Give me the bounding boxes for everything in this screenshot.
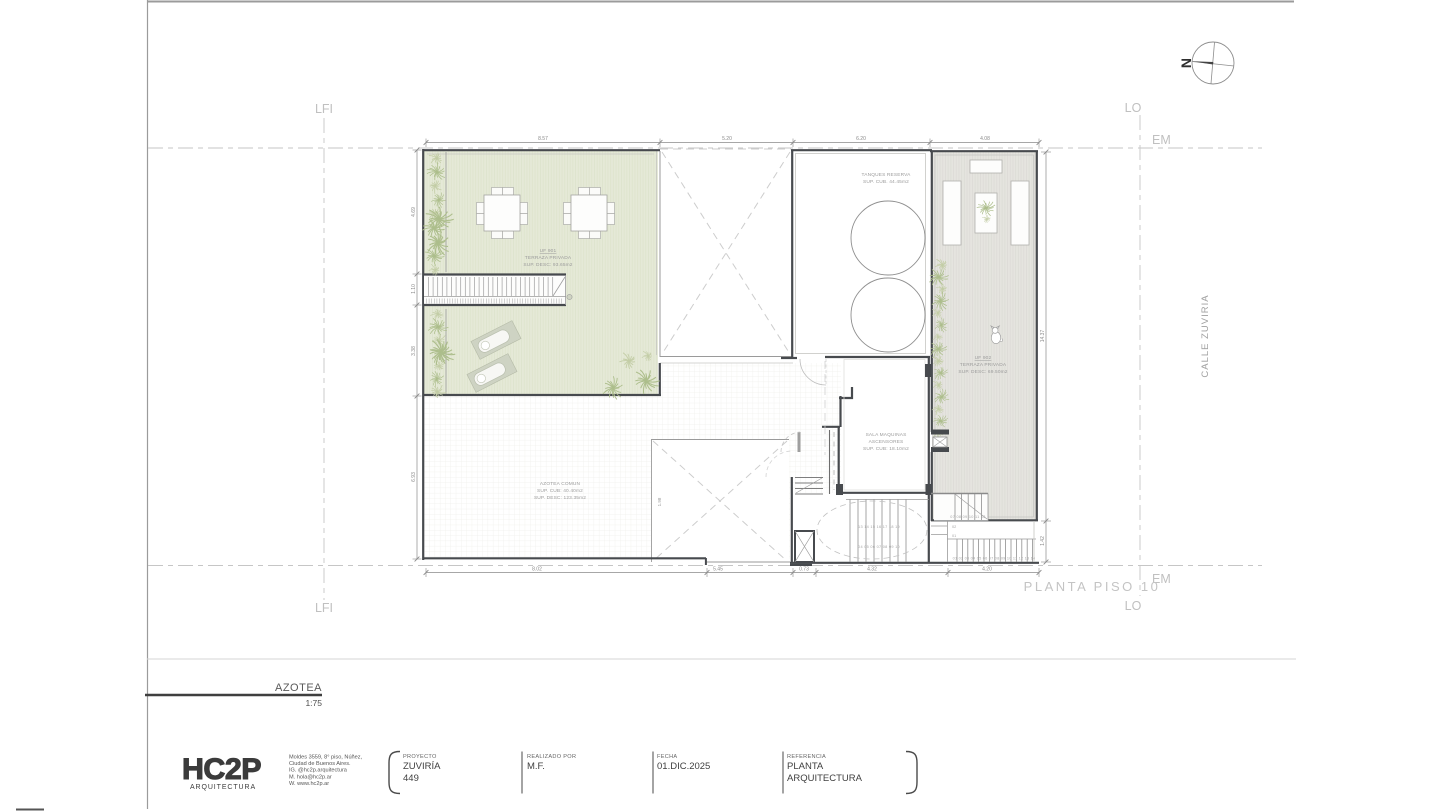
svg-text:PLANTA: PLANTA [787, 761, 824, 772]
svg-text:Ciudad de Buenos Aires.: Ciudad de Buenos Aires. [289, 761, 351, 767]
svg-text:FECHA: FECHA [657, 754, 677, 760]
svg-text:W. www.hc2p.ar: W. www.hc2p.ar [289, 781, 329, 787]
svg-text:HC2P: HC2P [182, 753, 261, 786]
svg-text:SUP. CUB. 44.45m2: SUP. CUB. 44.45m2 [863, 179, 909, 185]
svg-text:6.20: 6.20 [856, 136, 866, 142]
svg-text:ASCENSORES: ASCENSORES [869, 439, 904, 445]
svg-text:M. hola@hc2p.ar: M. hola@hc2p.ar [289, 774, 332, 780]
svg-text:14.37: 14.37 [1040, 330, 1046, 343]
svg-text:SALA MAQUINAS: SALA MAQUINAS [866, 432, 907, 438]
svg-text:PLANTA PISO 10: PLANTA PISO 10 [1024, 579, 1161, 594]
svg-text:1.42: 1.42 [1040, 536, 1046, 546]
svg-text:TERRAZA PRIVADA: TERRAZA PRIVADA [525, 255, 572, 261]
svg-text:Moldes 3559, 8° piso, Núñez,: Moldes 3559, 8° piso, Núñez, [289, 755, 363, 761]
svg-text:ARQUITECTURA: ARQUITECTURA [787, 773, 863, 784]
svg-text:04 05 06 07 08 09 10: 04 05 06 07 08 09 10 [858, 545, 900, 549]
svg-text:02: 02 [952, 525, 956, 529]
svg-text:SUP. DESC: 123.35m2: SUP. DESC: 123.35m2 [534, 495, 586, 501]
svg-text:CALLE ZUVIRIA: CALLE ZUVIRIA [1200, 294, 1211, 377]
svg-text:3.38: 3.38 [411, 346, 417, 356]
svg-text:TANQUES RESERVA: TANQUES RESERVA [862, 172, 912, 178]
svg-text:LFI: LFI [315, 102, 333, 116]
svg-text:01.DIC.2025: 01.DIC.2025 [657, 761, 710, 772]
svg-text:5.20: 5.20 [722, 136, 732, 142]
svg-text:5.45: 5.45 [713, 567, 723, 573]
svg-text:LFI: LFI [315, 601, 333, 615]
svg-text:REALIZADO POR: REALIZADO POR [527, 754, 576, 760]
svg-text:0.73: 0.73 [799, 567, 809, 573]
svg-text:SUP. CUB: 18.10m2: SUP. CUB: 18.10m2 [863, 446, 909, 452]
svg-text:SUP. DESC: 69.50m2: SUP. DESC: 69.50m2 [958, 369, 1007, 375]
svg-text:LO: LO [1125, 101, 1142, 115]
svg-text:SUP. CUB: 40.40m2: SUP. CUB: 40.40m2 [537, 488, 583, 494]
svg-text:UF 902: UF 902 [975, 355, 992, 361]
svg-text:N: N [1178, 58, 1194, 68]
svg-text:ZUVIRÍA: ZUVIRÍA [403, 761, 441, 772]
svg-text:6.93: 6.93 [411, 472, 417, 482]
svg-text:07 08 09 10 11 12: 07 08 09 10 11 12 [950, 515, 985, 519]
svg-text:1:75: 1:75 [305, 698, 322, 708]
svg-text:01 02 03 04 05 06 07 08 09 10: 01 02 03 04 05 06 07 08 09 10 11 12 13 1… [953, 557, 1036, 561]
svg-text:LO: LO [1125, 599, 1142, 613]
svg-text:8.02: 8.02 [532, 567, 542, 573]
svg-text:PROYECTO: PROYECTO [403, 754, 437, 760]
svg-text:AZOTEA COMUN: AZOTEA COMUN [540, 481, 581, 487]
svg-text:4.69: 4.69 [411, 207, 417, 217]
svg-text:M.F.: M.F. [527, 761, 545, 772]
svg-text:ARQUITECTURA: ARQUITECTURA [190, 784, 256, 791]
svg-text:1.98: 1.98 [657, 497, 662, 506]
svg-text:EM: EM [1152, 133, 1171, 147]
svg-text:TERRAZA PRIVADA: TERRAZA PRIVADA [960, 362, 1007, 368]
svg-text:8.57: 8.57 [538, 136, 548, 142]
svg-text:IG. @hc2p.arquitectura: IG. @hc2p.arquitectura [289, 768, 348, 774]
svg-text:4.08: 4.08 [980, 136, 990, 142]
svg-text:1.10: 1.10 [411, 284, 417, 294]
svg-text:UF 901: UF 901 [540, 248, 557, 254]
svg-text:4.32: 4.32 [867, 567, 877, 573]
svg-text:SUP. DESC: 93.65m2: SUP. DESC: 93.65m2 [523, 262, 572, 268]
svg-text:13 14 15 16 17 18 19: 13 14 15 16 17 18 19 [858, 525, 900, 529]
svg-text:REFERENCIA: REFERENCIA [787, 754, 826, 760]
svg-text:449: 449 [403, 773, 419, 784]
svg-text:AZOTEA: AZOTEA [275, 682, 322, 694]
svg-text:01: 01 [952, 534, 956, 538]
svg-text:4.20: 4.20 [982, 567, 992, 573]
